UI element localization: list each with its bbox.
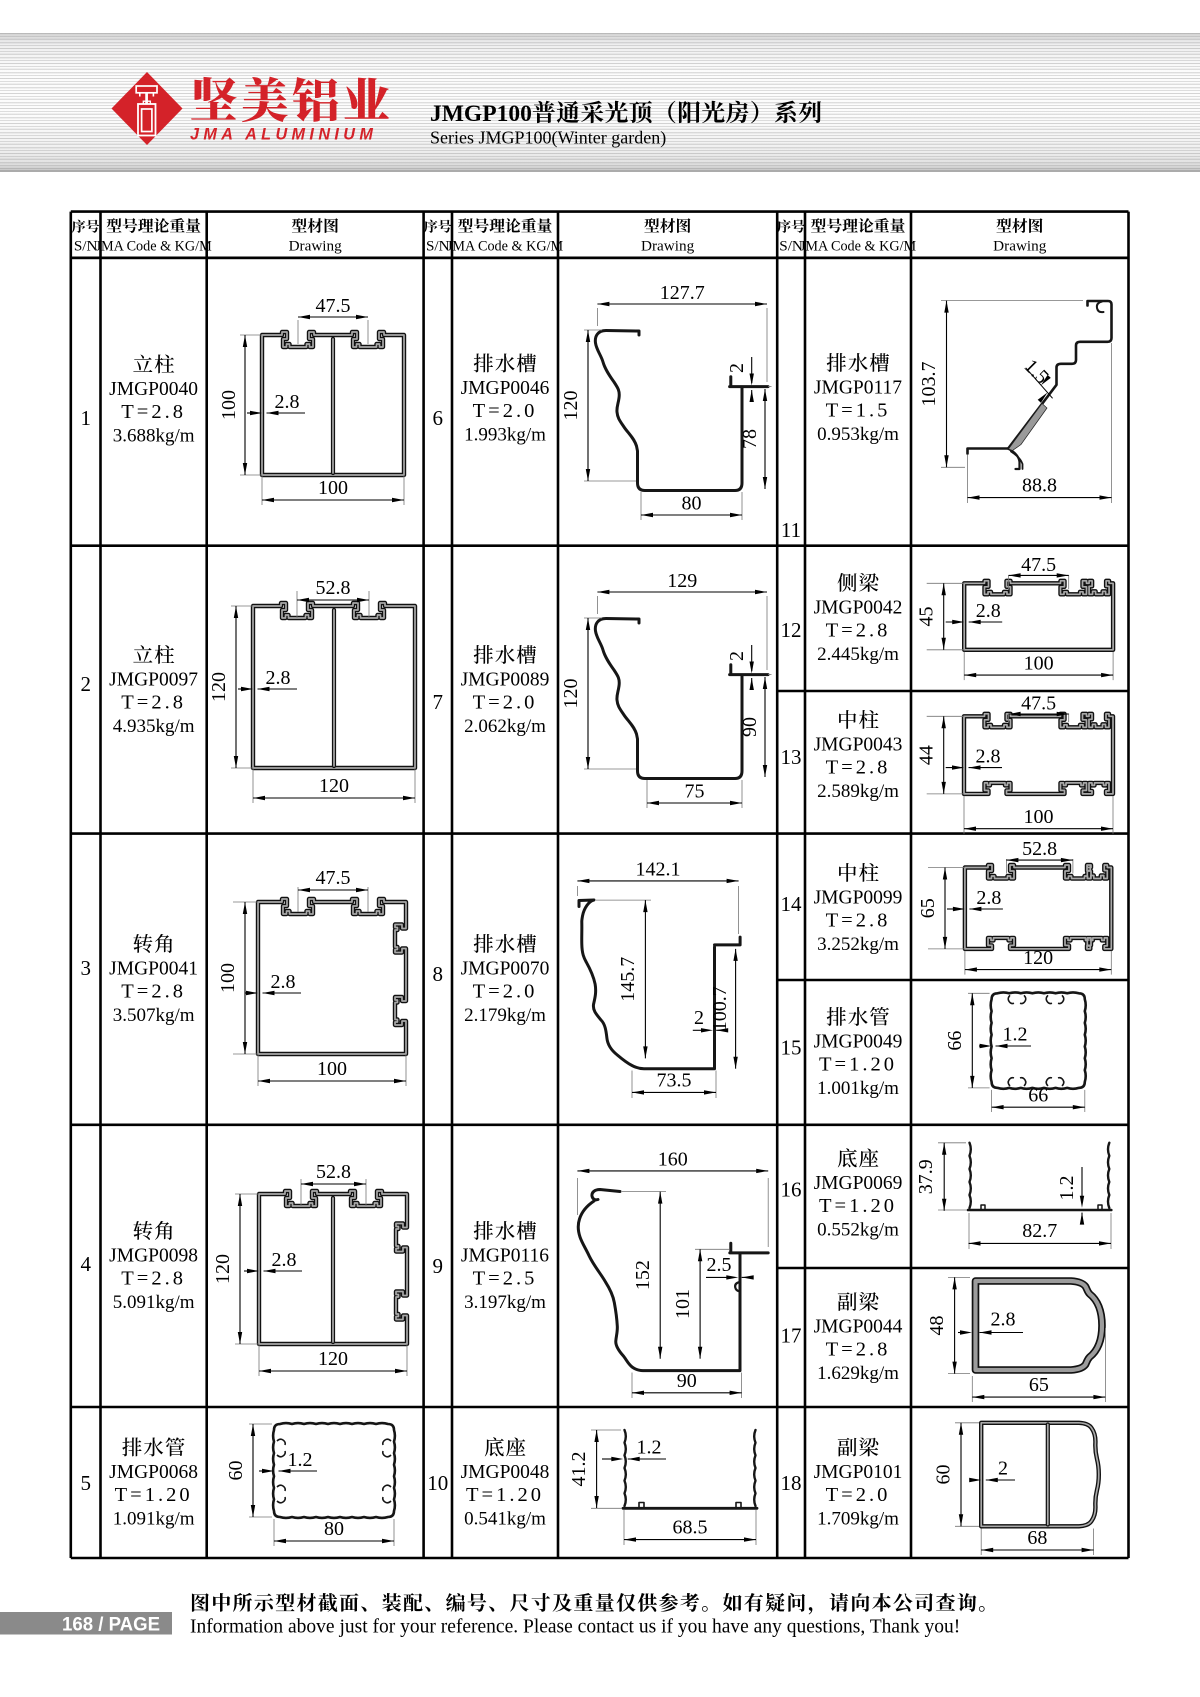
svg-text:100: 100 [1024,806,1054,828]
svg-text:JMGP0099: JMGP0099 [814,887,903,908]
svg-text:2.8: 2.8 [271,971,296,993]
svg-text:1.2: 1.2 [1056,1176,1078,1201]
svg-text:JMGP0068: JMGP0068 [109,1462,198,1483]
svg-text:1.2: 1.2 [637,1437,662,1459]
svg-text:47.5: 47.5 [1021,693,1056,715]
svg-text:2: 2 [694,1007,704,1029]
svg-text:82.7: 82.7 [1022,1220,1057,1242]
svg-text:JMA Code & KG/M: JMA Code & KG/M [95,239,212,255]
svg-text:1.001kg/m: 1.001kg/m [817,1078,899,1099]
svg-text:120: 120 [208,672,230,702]
svg-text:T=2.0: T=2.0 [473,692,538,714]
svg-text:2: 2 [726,363,748,373]
svg-text:Drawing: Drawing [641,238,695,255]
svg-text:52.8: 52.8 [1022,838,1057,860]
svg-text:120: 120 [1023,947,1053,969]
svg-text:44: 44 [916,745,938,765]
svg-text:2.179kg/m: 2.179kg/m [464,1005,546,1026]
svg-text:JMGP0044: JMGP0044 [814,1316,903,1337]
svg-text:1.993kg/m: 1.993kg/m [464,424,546,445]
svg-text:66: 66 [944,1031,966,1051]
svg-text:37.9: 37.9 [915,1159,937,1194]
svg-text:JMGP0101: JMGP0101 [814,1462,903,1483]
svg-text:0.953kg/m: 0.953kg/m [817,424,899,445]
svg-text:88.8: 88.8 [1022,475,1057,497]
svg-text:2.5: 2.5 [707,1254,732,1276]
svg-text:47.5: 47.5 [1021,554,1056,576]
svg-text:12: 12 [781,618,802,642]
svg-text:13: 13 [781,745,802,769]
svg-text:160: 160 [658,1149,688,1171]
svg-text:14: 14 [781,892,803,916]
svg-text:168 / PAGE: 168 / PAGE [62,1615,160,1636]
svg-text:1.5: 1.5 [1020,355,1053,388]
svg-text:T=2.8: T=2.8 [121,1268,186,1290]
svg-text:1.709kg/m: 1.709kg/m [817,1508,899,1529]
svg-text:JMGP0116: JMGP0116 [461,1245,549,1266]
svg-text:3.252kg/m: 3.252kg/m [817,934,899,955]
svg-text:JMA Code & KG/M: JMA Code & KG/M [447,239,564,255]
svg-text:T=1.20: T=1.20 [819,1195,897,1217]
svg-text:T=1.20: T=1.20 [466,1484,544,1506]
svg-text:120: 120 [319,775,349,797]
svg-text:48: 48 [926,1316,948,1336]
svg-text:JMGP0097: JMGP0097 [109,669,198,690]
svg-text:JMA ALUMINIUM: JMA ALUMINIUM [190,126,377,144]
svg-text:0.552kg/m: 0.552kg/m [817,1219,899,1240]
svg-text:127.7: 127.7 [660,282,705,304]
svg-text:Information above just for you: Information above just for your referenc… [190,1617,960,1638]
svg-text:100: 100 [318,477,348,499]
svg-text:15: 15 [781,1036,802,1060]
svg-text:80: 80 [682,493,702,515]
svg-text:JMGP0043: JMGP0043 [814,734,903,755]
svg-text:JMGP0049: JMGP0049 [814,1031,903,1052]
svg-text:Series JMGP100(Winter garden): Series JMGP100(Winter garden) [430,128,666,149]
svg-text:T=1.20: T=1.20 [115,1484,193,1506]
svg-text:45: 45 [916,607,938,627]
svg-text:3.197kg/m: 3.197kg/m [464,1292,546,1313]
svg-text:2: 2 [998,1458,1008,1480]
svg-text:60: 60 [933,1465,955,1485]
svg-text:152: 152 [632,1260,654,1290]
svg-text:66: 66 [1028,1085,1048,1107]
svg-text:2.8: 2.8 [976,746,1001,768]
svg-text:78: 78 [739,429,761,449]
svg-text:73.5: 73.5 [657,1070,692,1092]
svg-text:T=2.8: T=2.8 [121,981,186,1003]
svg-text:JMGP0048: JMGP0048 [461,1462,550,1483]
svg-text:JMGP0098: JMGP0098 [109,1245,198,1266]
svg-text:1.629kg/m: 1.629kg/m [817,1363,899,1384]
svg-text:100.7: 100.7 [709,986,731,1031]
svg-text:Drawing: Drawing [993,238,1047,255]
svg-text:2.8: 2.8 [272,1249,297,1271]
svg-text:9: 9 [433,1254,444,1278]
svg-text:100: 100 [218,390,240,420]
svg-text:T=2.0: T=2.0 [826,1484,891,1506]
svg-text:68.5: 68.5 [673,1517,708,1539]
svg-text:JMGP0041: JMGP0041 [109,958,198,979]
svg-text:52.8: 52.8 [316,1161,351,1183]
svg-text:18: 18 [781,1471,802,1495]
svg-text:17: 17 [781,1324,802,1348]
svg-text:JMGP0069: JMGP0069 [814,1173,903,1194]
svg-text:8: 8 [433,962,444,986]
svg-text:T=2.8: T=2.8 [826,910,891,932]
svg-text:T=2.0: T=2.0 [473,981,538,1003]
svg-text:1.2: 1.2 [1003,1024,1028,1046]
svg-text:3.688kg/m: 3.688kg/m [113,425,195,446]
svg-text:T=2.8: T=2.8 [826,620,891,642]
svg-text:T=2.8: T=2.8 [121,692,186,714]
svg-text:1.091kg/m: 1.091kg/m [113,1508,195,1529]
svg-text:4: 4 [80,1252,91,1276]
svg-text:JMGP0046: JMGP0046 [461,378,550,399]
svg-text:2.589kg/m: 2.589kg/m [817,781,899,802]
svg-text:101: 101 [672,1289,694,1319]
svg-text:52.8: 52.8 [316,577,351,599]
svg-text:65: 65 [1029,1374,1049,1396]
svg-text:T=2.8: T=2.8 [826,757,891,779]
svg-text:2.8: 2.8 [991,1309,1016,1331]
svg-text:2: 2 [726,651,748,661]
svg-text:145.7: 145.7 [617,957,639,1002]
svg-text:JMGP0089: JMGP0089 [461,669,550,690]
svg-text:4.935kg/m: 4.935kg/m [113,716,195,737]
svg-text:2.445kg/m: 2.445kg/m [817,644,899,665]
svg-text:100: 100 [217,963,239,993]
svg-text:JMGP0042: JMGP0042 [814,597,903,618]
svg-text:5: 5 [80,1471,91,1495]
svg-text:47.5: 47.5 [316,295,351,317]
svg-text:60: 60 [225,1461,247,1481]
svg-text:6: 6 [433,406,444,430]
svg-text:120: 120 [560,679,582,709]
svg-text:100: 100 [317,1058,347,1080]
svg-text:7: 7 [433,690,444,714]
svg-text:T=2.8: T=2.8 [826,1339,891,1361]
svg-text:68: 68 [1027,1527,1047,1549]
svg-text:120: 120 [560,391,582,421]
svg-text:2.8: 2.8 [275,391,300,413]
svg-text:5.091kg/m: 5.091kg/m [113,1292,195,1313]
svg-text:129: 129 [667,570,697,592]
svg-text:65: 65 [917,898,939,918]
svg-text:1.2: 1.2 [288,1449,313,1471]
svg-text:JMGP100: JMGP100 [430,101,532,127]
svg-text:T=2.8: T=2.8 [121,401,186,423]
svg-text:90: 90 [677,1370,697,1392]
svg-text:T=1.20: T=1.20 [819,1054,897,1076]
svg-text:1: 1 [80,406,91,430]
svg-text:10: 10 [427,1471,448,1495]
svg-text:90: 90 [739,717,761,737]
svg-text:JMGP0117: JMGP0117 [814,377,902,398]
svg-text:S/N: S/N [74,238,98,255]
svg-text:3: 3 [80,956,91,980]
svg-text:2.8: 2.8 [976,600,1001,622]
svg-text:JMGP0070: JMGP0070 [461,958,550,979]
svg-text:120: 120 [212,1254,234,1284]
svg-text:80: 80 [324,1518,344,1540]
svg-text:142.1: 142.1 [636,859,681,881]
svg-text:100: 100 [1024,653,1054,675]
svg-text:T=2.5: T=2.5 [473,1268,538,1290]
svg-text:JMA Code & KG/M: JMA Code & KG/M [800,239,917,255]
svg-text:11: 11 [781,518,801,542]
svg-text:2: 2 [80,672,91,696]
svg-text:Drawing: Drawing [289,238,343,255]
svg-text:2.062kg/m: 2.062kg/m [464,716,546,737]
svg-text:47.5: 47.5 [316,867,351,889]
svg-text:JMGP0040: JMGP0040 [109,379,198,400]
svg-text:2.8: 2.8 [266,667,291,689]
svg-text:T=2.0: T=2.0 [473,400,538,422]
svg-text:103.7: 103.7 [918,361,940,406]
svg-text:3.507kg/m: 3.507kg/m [113,1005,195,1026]
svg-text:16: 16 [781,1178,802,1202]
svg-text:41.2: 41.2 [568,1452,590,1487]
svg-text:T=1.5: T=1.5 [826,400,891,422]
svg-text:0.541kg/m: 0.541kg/m [464,1508,546,1529]
svg-text:120: 120 [318,1348,348,1370]
svg-text:2.8: 2.8 [976,887,1001,909]
svg-text:75: 75 [685,781,705,803]
